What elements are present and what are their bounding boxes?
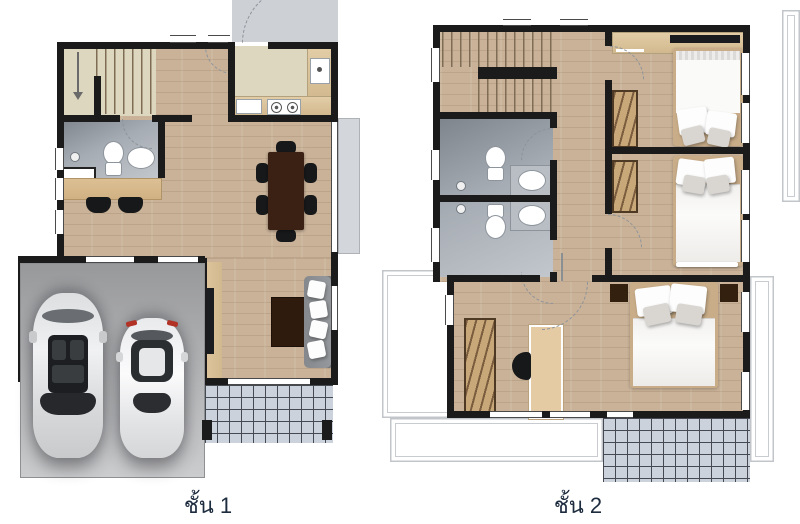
desk [529, 325, 563, 419]
wall [633, 411, 750, 418]
window [503, 19, 531, 26]
window [741, 53, 750, 95]
toilet-icon [484, 146, 506, 182]
window [741, 220, 750, 262]
roof-outline [782, 10, 800, 202]
tv-icon [670, 35, 740, 43]
toilet-tank [487, 167, 504, 181]
wall [592, 275, 750, 282]
floorplan-canvas: ชั้น 1 [0, 0, 800, 524]
roof-outline [390, 418, 603, 462]
stair-treads [442, 32, 555, 67]
window [741, 170, 750, 214]
window [741, 372, 750, 410]
window [431, 228, 440, 262]
sink-icon [518, 170, 546, 191]
window [741, 103, 750, 143]
window [445, 295, 454, 325]
bed-duvet [633, 318, 715, 386]
window [560, 19, 588, 26]
sink-icon [518, 205, 546, 226]
pendant-light [561, 253, 563, 281]
shower-icon [456, 181, 466, 191]
bed-pillow [675, 303, 704, 326]
balcony-tiles [603, 418, 750, 482]
bed-mattress [676, 51, 740, 113]
floor-2-label: ชั้น 2 [554, 488, 602, 523]
window [741, 292, 750, 332]
wall [550, 272, 557, 282]
bed-pillow [682, 174, 707, 195]
bed-bench [676, 262, 738, 267]
wardrobe [612, 160, 638, 213]
wall [433, 112, 557, 119]
window [490, 411, 542, 418]
balcony-door [607, 411, 633, 418]
wall [605, 154, 612, 214]
window [431, 150, 440, 180]
toilet-icon [484, 202, 506, 238]
wardrobe [612, 90, 638, 148]
wall [605, 32, 612, 46]
wardrobe [464, 318, 496, 415]
stair-treads [478, 79, 555, 112]
wall [447, 275, 540, 282]
nightstand [720, 284, 738, 302]
roof-outline [750, 276, 774, 462]
wall [433, 25, 750, 32]
toilet-bowl [485, 215, 506, 239]
shower-icon [456, 204, 466, 214]
wall [605, 147, 750, 154]
bed-head-ruffle [676, 51, 740, 60]
floor-2-plan: ชั้น 2 [0, 0, 800, 524]
wall [605, 80, 612, 154]
stair-wall [478, 67, 557, 79]
bed-duvet [676, 184, 740, 262]
nightstand [610, 284, 628, 302]
window [550, 411, 590, 418]
wall [440, 195, 553, 202]
window [431, 48, 440, 82]
